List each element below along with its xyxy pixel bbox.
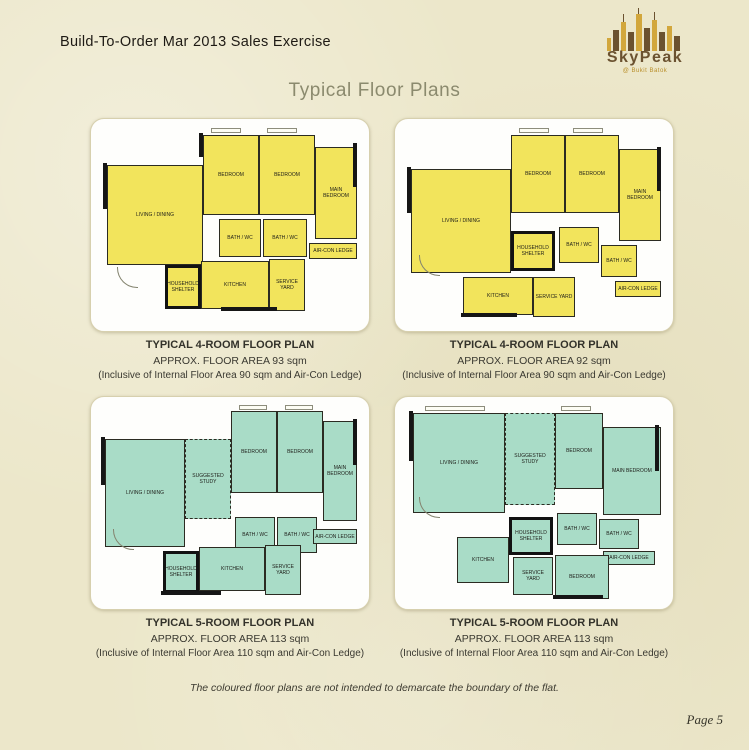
room-main-bedroom: MAIN BEDROOM [603,427,661,515]
floorplan-caption: TYPICAL 5-ROOM FLOOR PLAN APPROX. FLOOR … [384,616,684,662]
window [285,405,313,410]
floorplan-drawing-4room-92: LIVING / DINING BEDROOM BEDROOM MAIN BED… [405,127,663,323]
floorplan-cell-5room-113-left: LIVING / DINING SUGGESTED STUDY BEDROOM … [80,396,380,662]
caption-area: APPROX. FLOOR AREA 93 sqm [80,354,380,369]
wall-segment [221,307,277,311]
room-aircon-ledge: AIR-CON LEDGE [309,243,357,259]
floorplan-card: LIVING / DINING BEDROOM BEDROOM MAIN BED… [90,118,370,332]
document-title: Build-To-Order Mar 2013 Sales Exercise [60,34,331,50]
room-bedroom: BEDROOM [565,135,619,213]
logo-subtitle: @ Bukit Batok [597,68,693,74]
caption-title: TYPICAL 4-ROOM FLOOR PLAN [80,338,380,354]
room-main-bedroom: MAIN BEDROOM [323,421,357,521]
room-suggested-study: SUGGESTED STUDY [185,439,231,519]
room-service-yard: SERVICE YARD [513,557,553,595]
room-bedroom: BEDROOM [277,411,323,493]
floorplan-drawing-5room-113-right: LIVING / DINING SUGGESTED STUDY BEDROOM … [405,405,663,601]
room-service-yard: SERVICE YARD [269,259,305,311]
door-arc [419,497,440,518]
wall-segment [353,419,357,465]
caption-title: TYPICAL 5-ROOM FLOOR PLAN [80,616,380,632]
caption-inclusive: (Inclusive of Internal Floor Area 90 sqm… [384,369,684,384]
floorplan-card: LIVING / DINING SUGGESTED STUDY BEDROOM … [394,396,674,610]
floorplan-caption: TYPICAL 5-ROOM FLOOR PLAN APPROX. FLOOR … [80,616,380,662]
caption-area: APPROX. FLOOR AREA 92 sqm [384,354,684,369]
room-bath-wc: BATH / WC [599,519,639,549]
room-household-shelter: HOUSEHOLD SHELTER [509,517,553,555]
floorplan-caption: TYPICAL 4-ROOM FLOOR PLAN APPROX. FLOOR … [80,338,380,384]
caption-area: APPROX. FLOOR AREA 113 sqm [80,632,380,647]
window [561,406,591,411]
room-service-yard: SERVICE YARD [265,545,301,595]
room-kitchen: KITCHEN [457,537,509,583]
room-bath-wc: BATH / WC [263,219,307,257]
page-title: Typical Floor Plans [0,80,749,102]
wall-segment [553,595,603,599]
room-bedroom: BEDROOM [555,413,603,489]
floorplan-cell-5room-113-right: LIVING / DINING SUGGESTED STUDY BEDROOM … [384,396,684,662]
caption-inclusive: (Inclusive of Internal Floor Area 90 sqm… [80,369,380,384]
wall-segment [161,591,221,595]
room-bedroom: BEDROOM [231,411,277,493]
floorplan-caption: TYPICAL 4-ROOM FLOOR PLAN APPROX. FLOOR … [384,338,684,384]
room-kitchen: KITCHEN [463,277,533,315]
room-suggested-study: SUGGESTED STUDY [505,413,555,505]
wall-segment [657,147,661,191]
room-living-dining: LIVING / DINING [107,165,203,265]
window [573,128,603,133]
room-bath-wc: BATH / WC [219,219,261,257]
window [239,405,267,410]
floorplan-cell-4room-92: LIVING / DINING BEDROOM BEDROOM MAIN BED… [384,118,684,384]
room-aircon-ledge: AIR-CON LEDGE [615,281,661,297]
skypeak-logo: SkyPeak @ Bukit Batok [597,8,693,74]
caption-title: TYPICAL 5-ROOM FLOOR PLAN [384,616,684,632]
room-bath-wc: BATH / WC [559,227,599,263]
room-household-shelter: HOUSEHOLD SHELTER [163,551,199,593]
floorplan-card: LIVING / DINING BEDROOM BEDROOM MAIN BED… [394,118,674,332]
wall-segment [655,425,659,471]
logo-name: SkyPeak [597,50,693,66]
wall-segment [103,163,107,209]
window [211,128,241,133]
floorplan-cell-4room-93: LIVING / DINING BEDROOM BEDROOM MAIN BED… [80,118,380,384]
caption-title: TYPICAL 4-ROOM FLOOR PLAN [384,338,684,354]
window [519,128,549,133]
room-bedroom: BEDROOM [555,555,609,599]
room-bedroom: BEDROOM [511,135,565,213]
room-aircon-ledge: AIR-CON LEDGE [313,529,357,544]
floorplan-drawing-4room-93: LIVING / DINING BEDROOM BEDROOM MAIN BED… [101,127,359,323]
floorplan-card: LIVING / DINING SUGGESTED STUDY BEDROOM … [90,396,370,610]
caption-area: APPROX. FLOOR AREA 113 sqm [384,632,684,647]
room-service-yard: SERVICE YARD [533,277,575,317]
room-household-shelter: HOUSEHOLD SHELTER [165,265,201,309]
door-arc [117,267,138,288]
caption-inclusive: (Inclusive of Internal Floor Area 110 sq… [80,647,380,662]
room-kitchen: KITCHEN [199,547,265,591]
wall-segment [101,437,105,485]
wall-segment [409,411,413,461]
wall-segment [353,143,357,187]
room-bath-wc: BATH / WC [601,245,637,277]
room-main-bedroom: MAIN BEDROOM [619,149,661,241]
room-bedroom: BEDROOM [203,135,259,215]
room-bedroom: BEDROOM [259,135,315,215]
wall-segment [407,167,411,213]
floorplan-drawing-5room-113-left: LIVING / DINING SUGGESTED STUDY BEDROOM … [101,405,359,601]
skyline-icon [597,8,693,52]
caption-inclusive: (Inclusive of Internal Floor Area 110 sq… [384,647,684,662]
room-aircon-ledge: AIR-CON LEDGE [603,551,655,565]
room-main-bedroom: MAIN BEDROOM [315,147,357,239]
page-number: Page 5 [687,712,723,728]
window [267,128,297,133]
wall-segment [199,133,203,157]
wall-segment [461,313,517,317]
window [425,406,485,411]
disclaimer-text: The coloured floor plans are not intende… [0,682,749,694]
room-bath-wc: BATH / WC [557,513,597,545]
room-kitchen: KITCHEN [201,261,269,309]
room-household-shelter: HOUSEHOLD SHELTER [511,231,555,271]
